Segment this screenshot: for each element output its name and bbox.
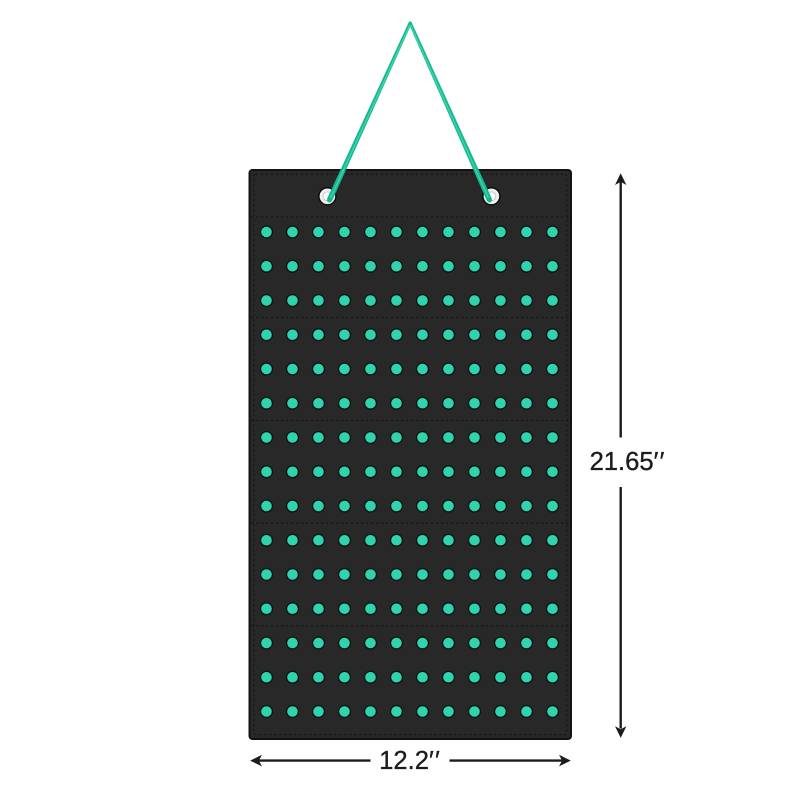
svg-text:21.65′′: 21.65′′	[590, 448, 665, 476]
svg-text:12.2′′: 12.2′′	[379, 747, 440, 775]
